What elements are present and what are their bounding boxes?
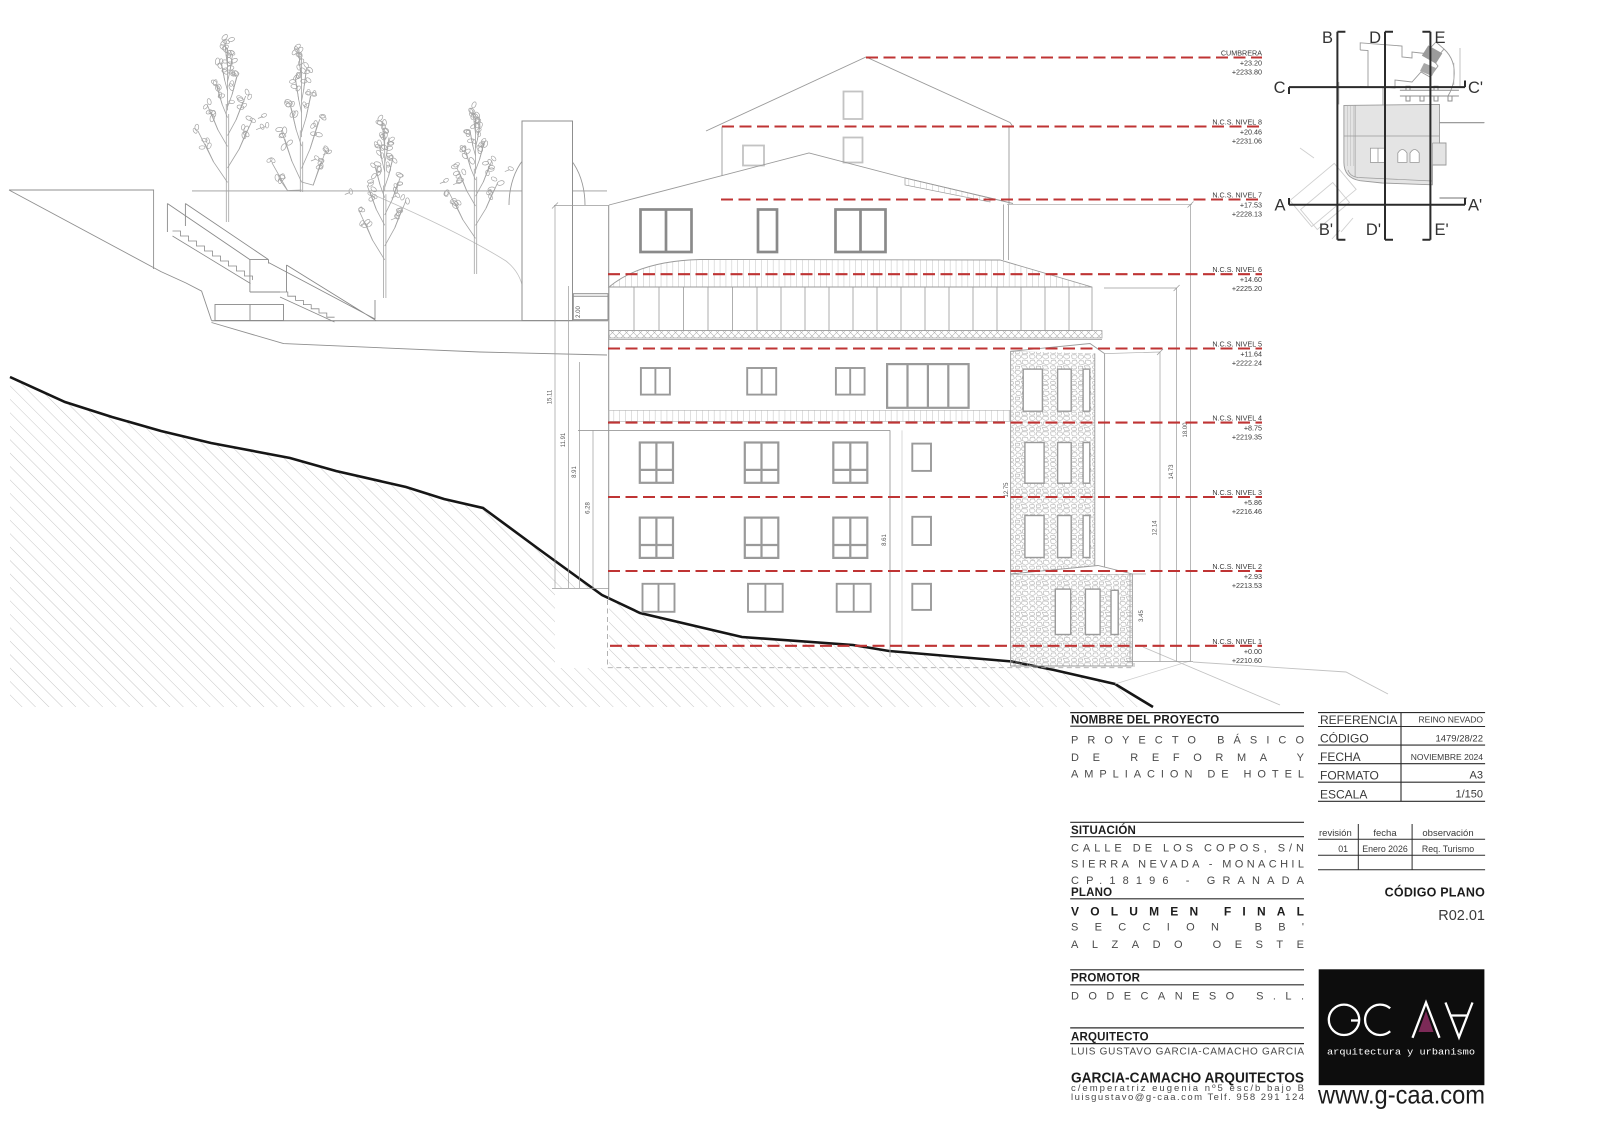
svg-text:observación: observación: [1422, 828, 1473, 839]
svg-text:FECHA: FECHA: [1320, 750, 1361, 764]
svg-text:Req. Turismo: Req. Turismo: [1422, 844, 1474, 854]
svg-text:+2219.35: +2219.35: [1232, 433, 1262, 442]
svg-text:N.C.S. NIVEL 7: N.C.S. NIVEL 7: [1212, 191, 1262, 200]
svg-text:CÓDIGO PLANO: CÓDIGO PLANO: [1385, 884, 1485, 899]
svg-text:NOMBRE DEL PROYECTO: NOMBRE DEL PROYECTO: [1071, 714, 1219, 726]
svg-text:SITUACIÓN: SITUACIÓN: [1071, 824, 1136, 837]
svg-text:luisgustavo@g-caa.com Telf.: luisgustavo@g-caa.com Telf. 958 291 124: [1071, 1092, 1304, 1103]
svg-text:+2216.46: +2216.46: [1232, 507, 1262, 516]
svg-text:PROMOTOR: PROMOTOR: [1071, 973, 1141, 985]
svg-text:R02.01: R02.01: [1438, 908, 1485, 924]
svg-text:8.61: 8.61: [882, 534, 888, 546]
svg-text:15.11: 15.11: [548, 389, 554, 404]
svg-text:+2.93: +2.93: [1244, 572, 1262, 581]
svg-text:14.73: 14.73: [1169, 464, 1175, 480]
svg-text:+8.75: +8.75: [1244, 424, 1262, 433]
svg-text:PLANO: PLANO: [1071, 887, 1112, 899]
svg-text:+2225.20: +2225.20: [1232, 284, 1262, 293]
svg-text:+11.64: +11.64: [1240, 350, 1262, 359]
svg-text:REFERENCIA: REFERENCIA: [1320, 713, 1397, 727]
svg-text:+2228.13: +2228.13: [1232, 210, 1262, 219]
svg-text:+2231.06: +2231.06: [1232, 137, 1262, 146]
svg-text:+2222.24: +2222.24: [1232, 359, 1262, 368]
svg-text:1479/28/22: 1479/28/22: [1435, 734, 1483, 745]
svg-text:C: C: [1274, 79, 1286, 97]
svg-text:+23.20: +23.20: [1240, 59, 1262, 68]
svg-text:E: E: [1435, 29, 1446, 47]
svg-text:+5.86: +5.86: [1244, 498, 1262, 507]
svg-text:8.91: 8.91: [572, 466, 578, 478]
svg-text:N.C.S. NIVEL 6: N.C.S. NIVEL 6: [1212, 265, 1262, 274]
svg-text:fecha: fecha: [1373, 828, 1397, 839]
svg-text:N.C.S. NIVEL 5: N.C.S. NIVEL 5: [1212, 340, 1262, 349]
svg-text:www.g-caa.com: www.g-caa.com: [1317, 1080, 1485, 1110]
svg-text:11.91: 11.91: [561, 432, 567, 447]
svg-text:01: 01: [1338, 844, 1348, 854]
svg-text:+2213.53: +2213.53: [1232, 581, 1262, 590]
svg-text:12.14: 12.14: [1153, 520, 1159, 536]
svg-text:N.C.S. NIVEL 2: N.C.S. NIVEL 2: [1212, 562, 1262, 571]
svg-text:LUIS GUSTAVO GARCIA-CAMACHO GA: LUIS GUSTAVO GARCIA-CAMACHO GARCIA: [1071, 1046, 1304, 1057]
svg-text:2.00: 2.00: [576, 306, 582, 318]
svg-text:+0.00: +0.00: [1244, 647, 1262, 656]
svg-text:B: B: [1322, 29, 1333, 47]
svg-text:+14.60: +14.60: [1240, 275, 1262, 284]
svg-text:D: D: [1369, 29, 1381, 47]
svg-text:+17.53: +17.53: [1240, 201, 1262, 210]
svg-text:E': E': [1435, 221, 1449, 239]
svg-text:+20.46: +20.46: [1240, 128, 1262, 137]
svg-text:revisión: revisión: [1319, 828, 1352, 839]
svg-text:ARQUITECTO: ARQUITECTO: [1071, 1031, 1149, 1043]
svg-text:18.00: 18.00: [1183, 422, 1189, 438]
svg-text:D': D': [1366, 221, 1381, 239]
svg-text:A3: A3: [1470, 770, 1483, 782]
svg-text:REINO NEVADO: REINO NEVADO: [1418, 715, 1483, 725]
svg-text:FORMATO: FORMATO: [1320, 769, 1379, 783]
svg-text:C': C': [1468, 79, 1483, 97]
svg-text:N.C.S. NIVEL 4: N.C.S. NIVEL 4: [1212, 414, 1262, 423]
svg-text:ESCALA: ESCALA: [1320, 787, 1367, 801]
svg-text:NOVIEMBRE 2024: NOVIEMBRE 2024: [1411, 752, 1484, 762]
svg-text:A: A: [1274, 197, 1285, 215]
svg-text:arquitectura y urbanismo: arquitectura y urbanismo: [1327, 1047, 1475, 1058]
svg-text:N.C.S. NIVEL 8: N.C.S. NIVEL 8: [1212, 118, 1262, 127]
svg-text:N.C.S. NIVEL 3: N.C.S. NIVEL 3: [1212, 488, 1262, 497]
svg-text:Enero 2026: Enero 2026: [1362, 844, 1408, 854]
svg-text:CUMBRERA: CUMBRERA: [1221, 49, 1262, 58]
svg-text:3.45: 3.45: [1139, 610, 1145, 622]
svg-text:CÓDIGO: CÓDIGO: [1320, 731, 1369, 746]
svg-text:+2210.60: +2210.60: [1232, 656, 1262, 665]
svg-text:A': A': [1468, 197, 1482, 215]
svg-text:SIERRA NEVADA - MONACHIL: SIERRA NEVADA - MONACHIL: [1071, 859, 1304, 871]
svg-text:1/150: 1/150: [1455, 789, 1483, 801]
svg-text:B': B': [1319, 221, 1333, 239]
svg-text:N.C.S. NIVEL 1: N.C.S. NIVEL 1: [1212, 637, 1262, 646]
svg-text:+2233.80: +2233.80: [1232, 68, 1262, 77]
svg-text:12.75: 12.75: [1004, 482, 1010, 498]
svg-text:6.28: 6.28: [586, 502, 592, 514]
